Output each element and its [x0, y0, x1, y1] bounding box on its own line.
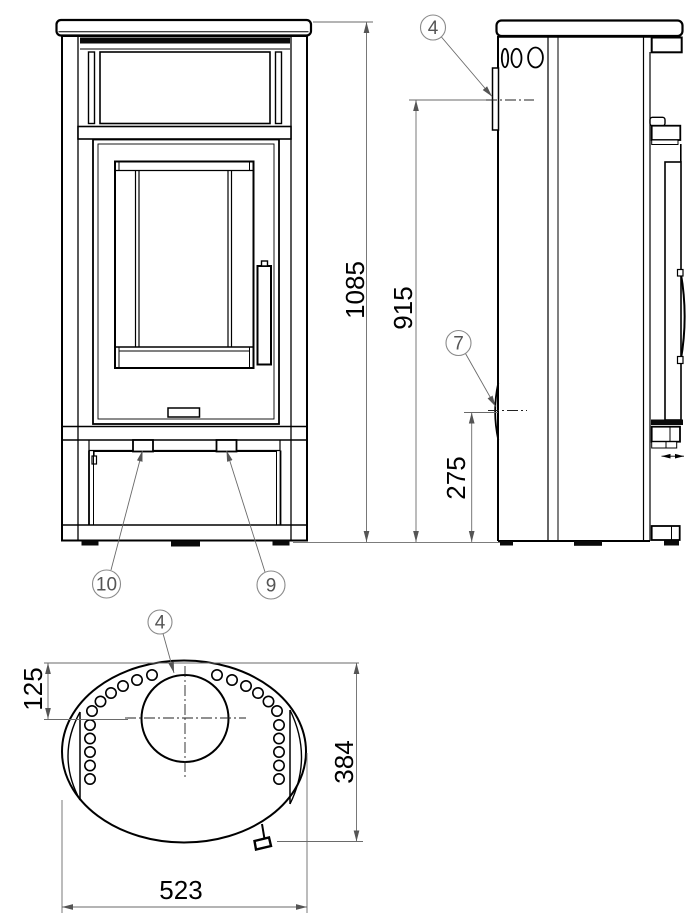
base-panel: [94, 452, 277, 526]
foot-side-mid: [574, 541, 602, 546]
latch-handle: [255, 838, 272, 850]
foot-front-mid: [171, 541, 200, 547]
side-front-lip: [652, 38, 682, 53]
side-door-tab: [650, 117, 665, 125]
front-rail: [78, 127, 291, 140]
balloon-num-item4-top: 4: [155, 613, 166, 634]
side-door-thin-bar: [652, 140, 678, 145]
vent-holes-right: [212, 670, 284, 784]
vent-hole: [87, 706, 97, 716]
vent-slot-1: [502, 49, 508, 67]
balloon-num-item7: 7: [453, 334, 464, 355]
foot-front-right: [273, 541, 290, 546]
dim-label-overall-height: 1085: [340, 261, 370, 319]
side-door-top-bar: [652, 126, 681, 140]
vent-hole: [227, 675, 237, 685]
vent-hole: [212, 670, 222, 680]
dim-label-rear-upper: 915: [388, 286, 418, 329]
side-window-frame: [665, 162, 681, 420]
leader-item7: [466, 354, 496, 407]
vent-hole: [272, 706, 282, 716]
vent-hole: [118, 681, 128, 691]
vent-hole: [274, 760, 284, 770]
leader-item9: [227, 451, 266, 573]
vent-hole: [85, 733, 95, 743]
vent-hole: [274, 733, 284, 743]
door-label-plate: [168, 408, 200, 417]
foot-side-front: [664, 541, 679, 546]
stove-door: [93, 140, 279, 425]
dim-label-rear-lower: 275: [441, 456, 471, 499]
stove-door-inner: [98, 144, 274, 419]
side-door-step: [652, 427, 680, 442]
air-inlet-connector: [493, 68, 499, 130]
side-door-step2: [652, 442, 677, 448]
top-view: [62, 661, 306, 850]
front-top-dark-band: [80, 38, 290, 44]
vent-slot-2: [512, 49, 522, 67]
latch-tab-left: [133, 440, 153, 452]
side-door-dark-bar: [651, 420, 683, 426]
dim-label-depth: 384: [329, 740, 359, 783]
vent-hole: [253, 688, 263, 698]
dim-label-flue-offset: 125: [18, 667, 48, 710]
side-panel-arc-left: [68, 712, 80, 800]
vent-hole: [263, 696, 273, 706]
vent-hole: [132, 675, 142, 685]
base-latch: [92, 456, 97, 464]
balloon-num-item10: 10: [96, 575, 117, 596]
latch-stem: [262, 824, 265, 839]
top-plate-outline: [62, 661, 306, 843]
upper-panel-left-bar: [89, 52, 95, 124]
door-handle-nub: [262, 261, 268, 266]
side-bottom-bracket: [652, 526, 680, 540]
latch-tab-right: [217, 440, 237, 452]
foot-front-left: [82, 541, 99, 546]
dim-label-width: 523: [159, 875, 202, 905]
stove-drawing: 1085 915 275 125 384 523 4 7 10: [0, 0, 700, 918]
vent-hole: [274, 720, 284, 730]
side-handle-cap-bottom: [678, 357, 684, 364]
side-view: [493, 21, 685, 546]
front-view: [57, 20, 312, 547]
vent-hole: [106, 688, 116, 698]
side-top-plate: [497, 21, 683, 37]
vent-hole: [274, 747, 284, 757]
front-top-plate: [57, 20, 312, 36]
vent-hole: [147, 670, 157, 680]
side-handle-cap-top: [678, 270, 684, 277]
balloon-num-item4-side: 4: [428, 18, 439, 39]
upper-panel-right-bar: [276, 52, 282, 124]
technical-drawing-page: 1085 915 275 125 384 523 4 7 10: [0, 0, 700, 918]
foot-side-back: [500, 541, 513, 546]
vent-hole: [274, 774, 284, 784]
callouts: 4 7 10 9 4: [93, 15, 496, 673]
leader-item10: [111, 451, 143, 571]
upper-panel: [100, 52, 270, 124]
vent-hole: [85, 720, 95, 730]
vent-hole: [85, 747, 95, 757]
vent-hole: [241, 681, 251, 691]
vent-hole: [85, 774, 95, 784]
leader-item4-top: [163, 634, 174, 674]
vent-holes-left: [85, 670, 157, 784]
door-handle: [258, 266, 272, 365]
vent-slot-3: [528, 48, 543, 68]
vent-hole: [95, 696, 105, 706]
vent-hole: [85, 760, 95, 770]
balloon-num-item9: 9: [266, 576, 277, 597]
leader-item4-side: [441, 37, 492, 97]
